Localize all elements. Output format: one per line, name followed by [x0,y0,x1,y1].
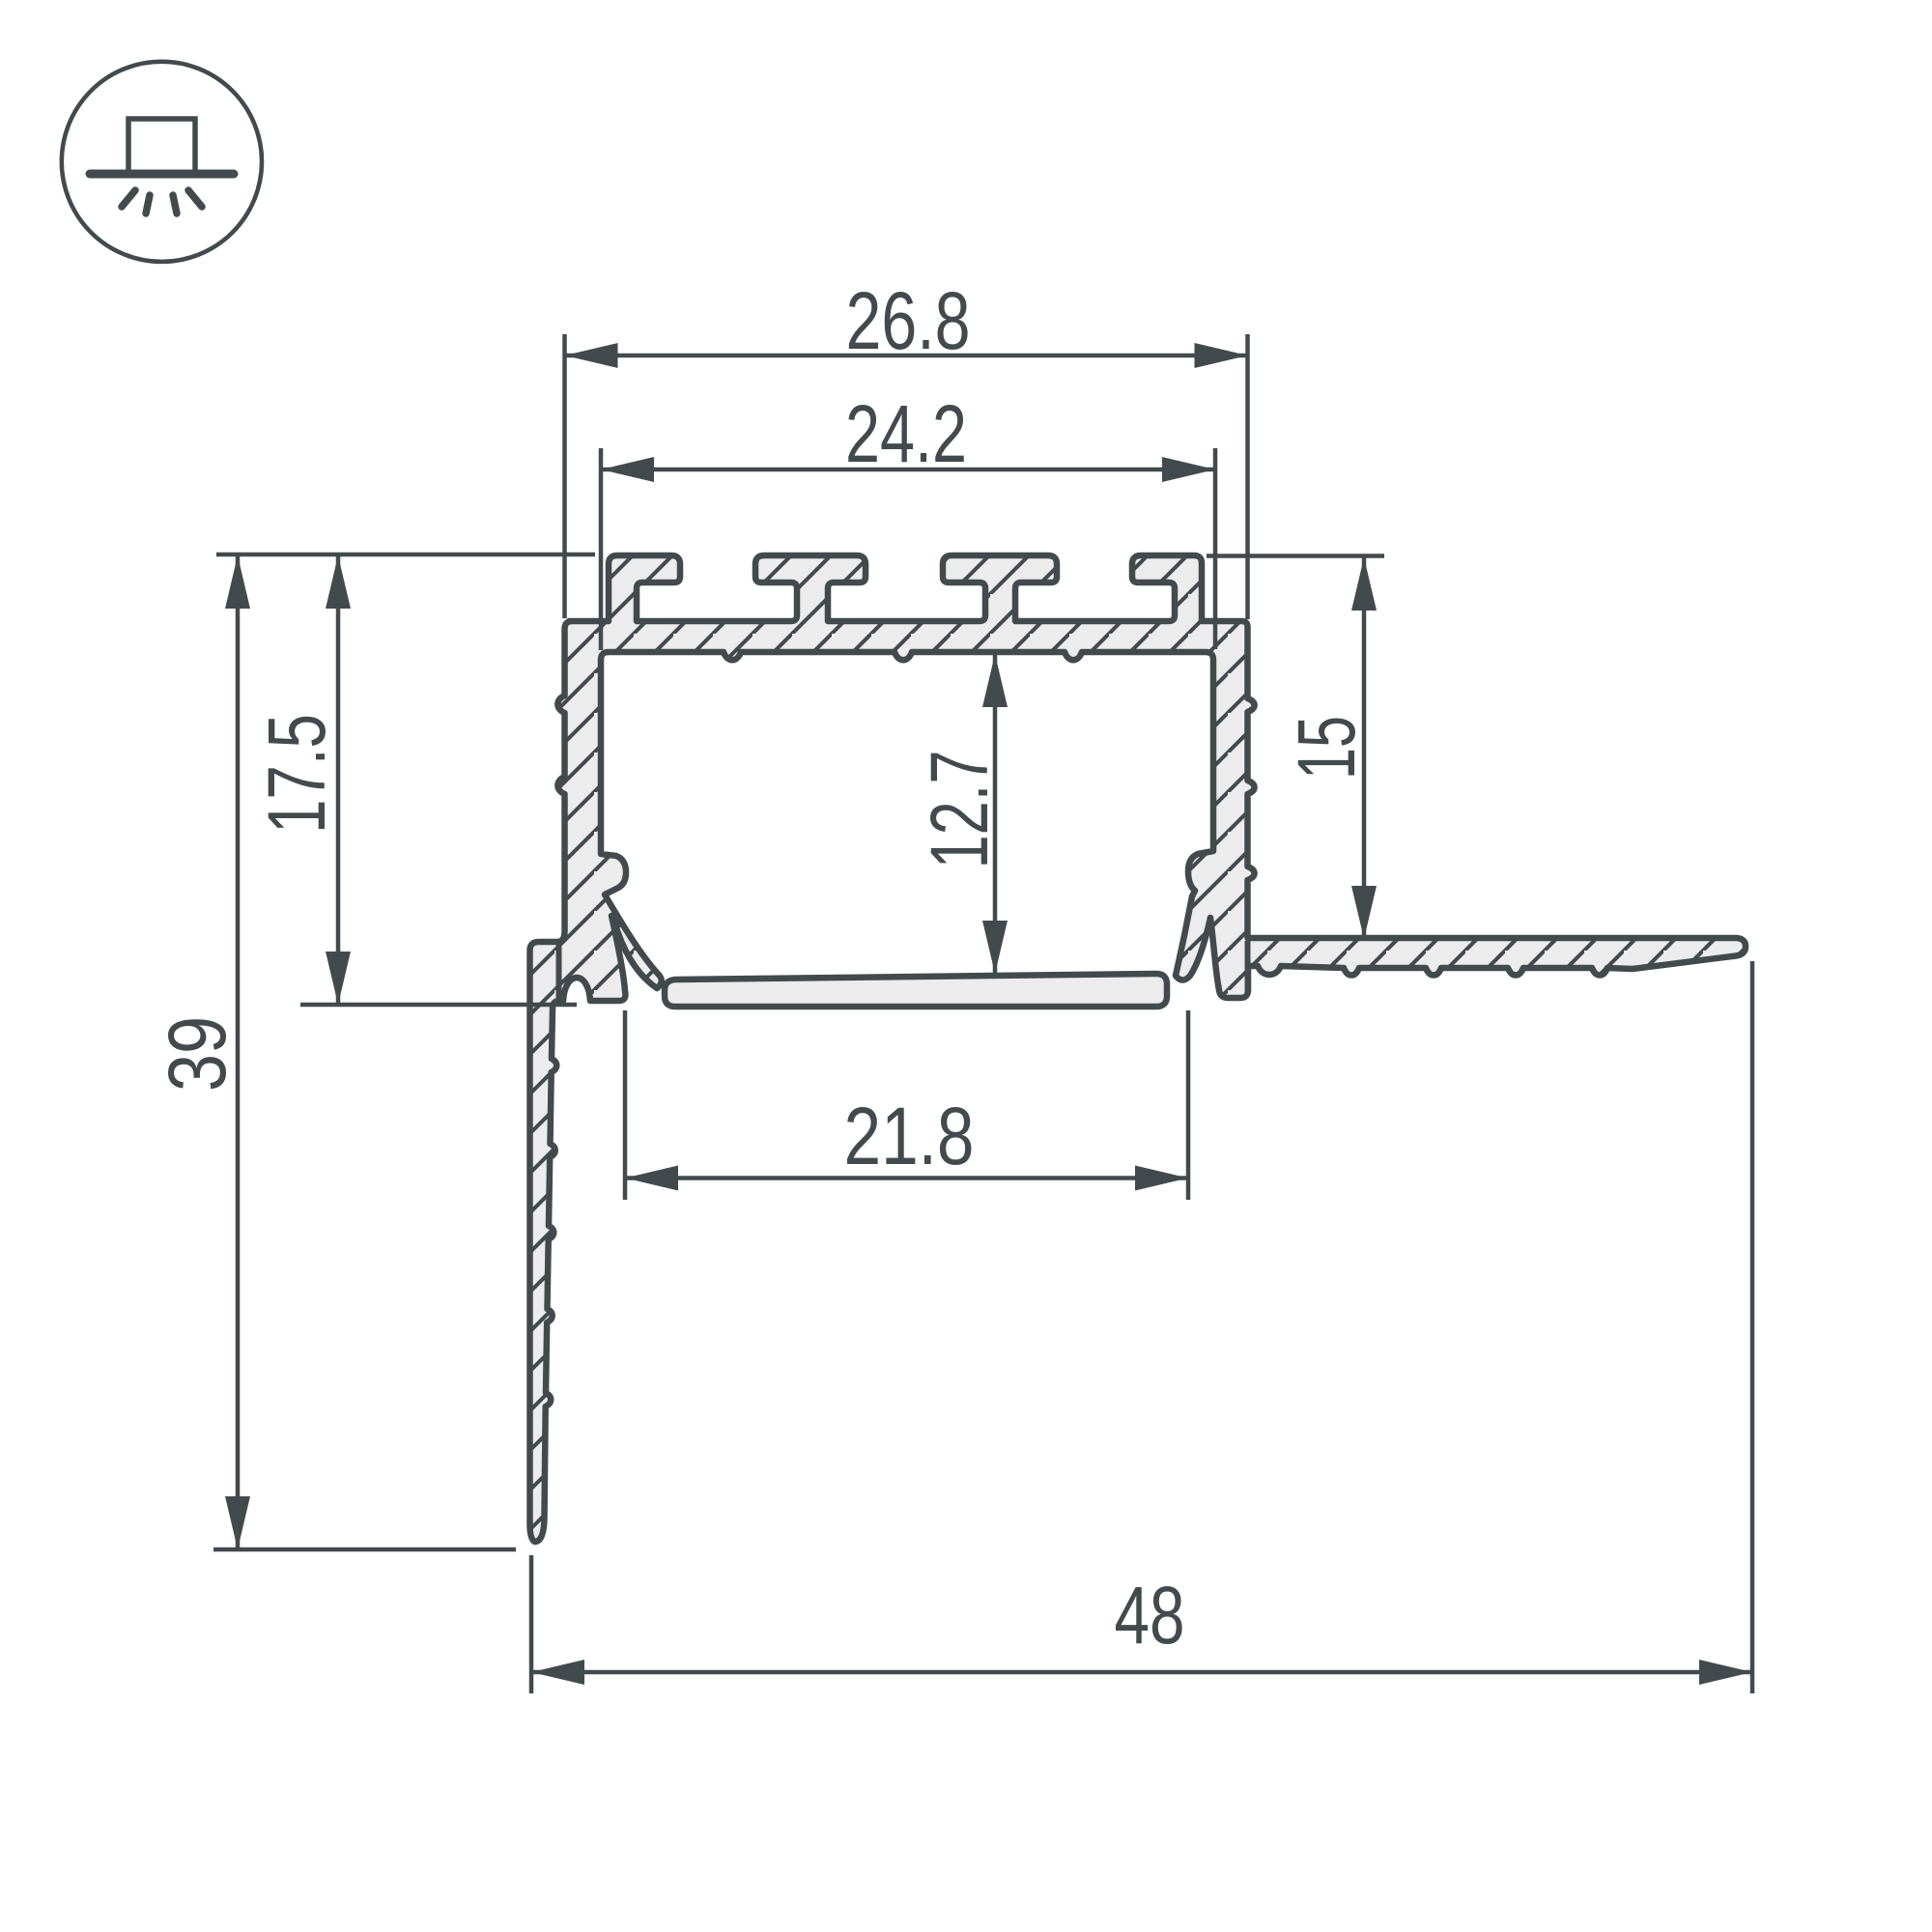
svg-text:15: 15 [1281,716,1372,780]
svg-text:48: 48 [1115,1570,1185,1661]
svg-text:26.8: 26.8 [846,275,971,366]
svg-text:12.7: 12.7 [914,751,1005,869]
svg-text:39: 39 [152,1016,242,1092]
svg-text:17.5: 17.5 [251,714,342,834]
svg-text:24.2: 24.2 [845,388,967,479]
svg-text:21.8: 21.8 [844,1091,975,1181]
